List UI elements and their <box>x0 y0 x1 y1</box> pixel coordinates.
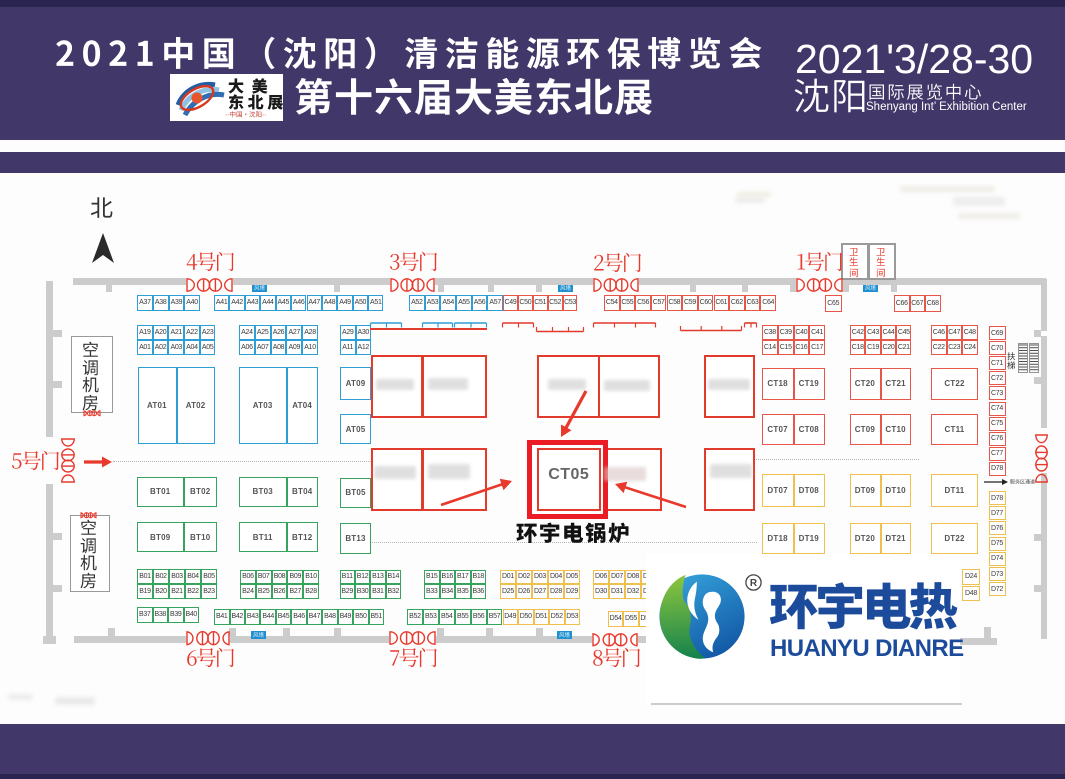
svg-text:R: R <box>750 578 758 589</box>
